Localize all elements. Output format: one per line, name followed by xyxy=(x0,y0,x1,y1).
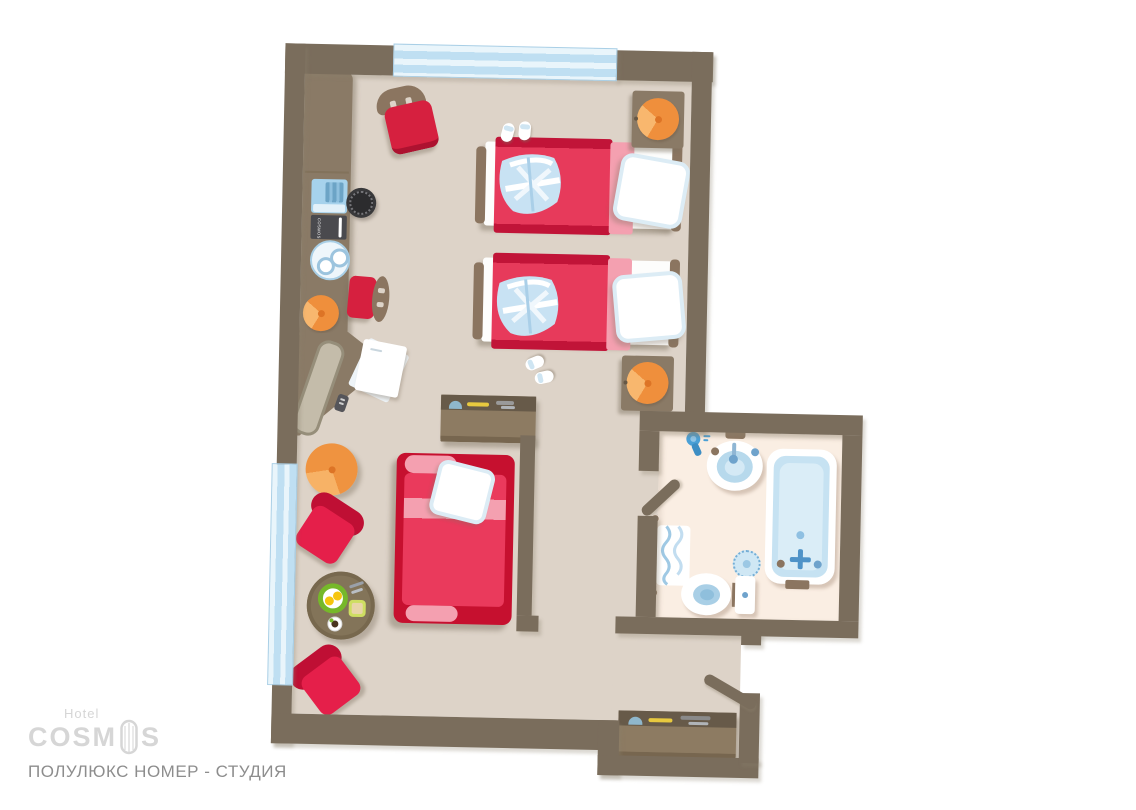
bathrobe-icon xyxy=(487,149,574,221)
console-item-gray xyxy=(680,716,710,721)
slipper-strap xyxy=(520,124,530,130)
lamp-icon xyxy=(626,362,669,405)
slipper xyxy=(518,121,532,141)
dresser-item-gray xyxy=(501,406,515,409)
butter xyxy=(352,603,363,614)
pillow xyxy=(611,270,686,344)
bathroom-wall-left-lower xyxy=(636,516,658,617)
hairdryer-icon xyxy=(686,432,712,457)
eggs-plate-icon xyxy=(318,583,349,614)
bed-footboard xyxy=(475,146,487,223)
desk-chair xyxy=(346,273,392,323)
entry-wall-bottom xyxy=(597,755,758,778)
cosmos-tower-icon xyxy=(118,719,140,755)
egg-yolk xyxy=(333,591,342,600)
dresser-item-blue xyxy=(449,401,462,409)
menu-folder-label: COSMOS xyxy=(316,218,321,239)
console-item-gray xyxy=(688,722,708,725)
pen-icon xyxy=(338,217,341,237)
entry-console xyxy=(618,710,737,759)
twin-bed-2 xyxy=(472,252,681,352)
drawer-knob xyxy=(634,117,638,121)
notepad-line xyxy=(370,348,382,352)
wall-bottom xyxy=(271,713,617,750)
dresser-item-yellow xyxy=(467,402,489,406)
bathtub xyxy=(764,448,837,584)
floor-plan: COSMOS xyxy=(260,33,887,788)
plan-title: ПОЛУЛЮКС НОМЕР - СТУДИЯ xyxy=(28,762,287,782)
air-line xyxy=(703,435,710,437)
slipper-strap xyxy=(537,373,544,384)
drawer-knob xyxy=(623,380,627,384)
cutlery-icon xyxy=(349,580,368,597)
console-item-yellow xyxy=(648,718,672,723)
twin-bed-1 xyxy=(475,136,684,236)
lamp-center xyxy=(317,310,324,317)
pouf-button xyxy=(329,466,336,473)
pillow xyxy=(611,151,692,230)
menu-folder-icon: COSMOS xyxy=(310,215,346,240)
console-item-blue xyxy=(628,717,642,725)
lamp-icon xyxy=(637,98,680,141)
slipper-strap xyxy=(527,359,535,370)
tv-base xyxy=(313,204,345,213)
window-top xyxy=(393,44,618,82)
drain-center xyxy=(743,560,751,568)
page-canvas: COSMOS xyxy=(0,0,1136,810)
tv-screen xyxy=(325,182,343,202)
hairdryer-head-inner xyxy=(690,436,696,442)
tap-handle xyxy=(711,447,719,455)
butter-dish-icon xyxy=(349,600,366,617)
bathroom-wall-right xyxy=(839,435,863,621)
leaf-garnish xyxy=(329,618,333,622)
tub-faucet-icon xyxy=(790,557,811,562)
logo-prefix: COSM xyxy=(28,722,117,753)
bed-footboard xyxy=(472,262,484,339)
chair-slot xyxy=(376,302,383,308)
tv-icon xyxy=(311,179,348,214)
speaker-grille xyxy=(349,191,373,215)
bathroom-wall-left-upper xyxy=(639,431,660,471)
sofa-armrest xyxy=(405,605,457,622)
coffee-cup-icon xyxy=(327,616,342,631)
slipper xyxy=(524,354,546,372)
remote-buttons xyxy=(339,402,344,405)
logo-wordmark: COSMS xyxy=(28,719,161,755)
air-line xyxy=(703,439,708,441)
chair-slot xyxy=(378,288,385,294)
sofa-bed xyxy=(393,453,515,625)
toilet-tank xyxy=(735,576,756,614)
slippers-icon xyxy=(501,121,535,144)
flush-button xyxy=(742,592,748,598)
hairdryer-handle xyxy=(691,442,703,457)
lamp-center xyxy=(654,116,661,123)
lamp-center xyxy=(644,379,651,386)
nightstand-2 xyxy=(621,355,674,411)
slipper-strap xyxy=(503,125,514,132)
slipper xyxy=(499,122,516,143)
dresser-item-gray xyxy=(496,401,514,405)
window-left xyxy=(267,463,298,685)
entry-door-stub xyxy=(741,631,761,645)
tap-handle xyxy=(751,448,759,456)
dining-chair xyxy=(371,80,445,152)
fork xyxy=(351,588,363,594)
partition-wall-foot xyxy=(516,615,538,631)
tub-step xyxy=(785,580,809,590)
towels-icon xyxy=(655,524,692,587)
cup-icon xyxy=(330,248,349,267)
bathrobe-icon xyxy=(484,271,571,343)
logo-suffix: S xyxy=(141,722,161,753)
remote-buttons xyxy=(340,398,345,401)
nightstand-1 xyxy=(631,91,684,149)
